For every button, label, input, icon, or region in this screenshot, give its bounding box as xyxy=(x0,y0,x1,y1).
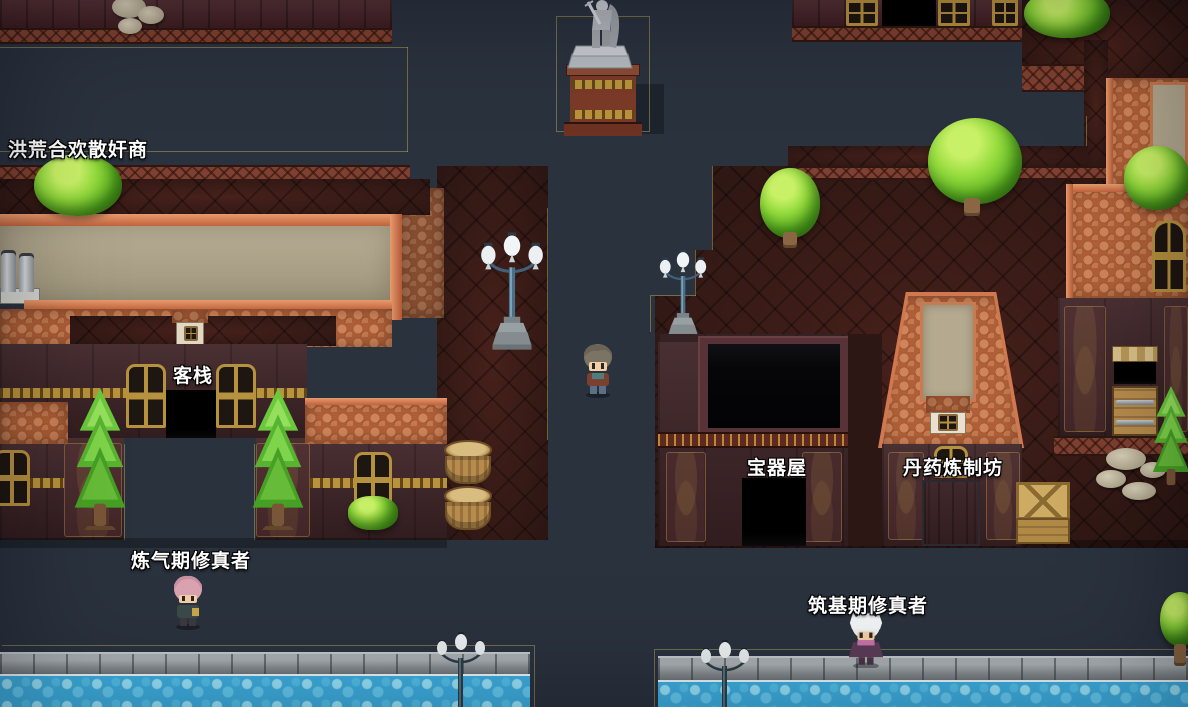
treasure-shop-entrance[interactable] xyxy=(742,478,806,546)
wall-stone xyxy=(118,18,142,34)
wooden-crate-base xyxy=(1016,518,1070,544)
wing-roof-right-trim xyxy=(305,398,447,405)
tree-trunk xyxy=(783,232,797,248)
pedestal-band xyxy=(572,80,634,89)
label-inn: 客栈 xyxy=(173,365,213,387)
lamppost xyxy=(700,640,750,707)
label-merchant: 洪荒合欢散奸商 xyxy=(8,139,148,161)
dormer-window xyxy=(938,414,958,431)
chimney xyxy=(19,253,34,292)
treasure-shop-deco-band xyxy=(658,432,848,448)
pedestal-band xyxy=(572,110,634,119)
pool-outline xyxy=(534,645,535,707)
tree-round xyxy=(928,118,1022,204)
inn-window xyxy=(216,364,256,428)
counter-opening[interactable] xyxy=(1114,362,1156,384)
top-left-wall-trim xyxy=(0,28,392,44)
arched-window xyxy=(1152,220,1186,292)
tree-pine xyxy=(252,388,304,530)
tree-pine xyxy=(1150,386,1188,488)
right-building-panel xyxy=(1064,306,1106,432)
top-building-window xyxy=(938,0,970,26)
wing-roof-left xyxy=(0,402,68,444)
tree-round xyxy=(1160,592,1188,646)
barrel xyxy=(445,456,491,484)
label-npc-qi-refining: 炼气期修真者 xyxy=(131,550,251,572)
tree-round xyxy=(1124,146,1188,210)
top-building-window xyxy=(846,0,878,26)
top-left-wall xyxy=(0,0,392,30)
path-outline xyxy=(0,47,408,48)
tree-trunk xyxy=(1174,644,1186,666)
inn-entrance-path[interactable] xyxy=(124,438,256,540)
tree-trunk xyxy=(964,198,980,216)
pill-workshop-sign xyxy=(920,302,976,402)
inn-flat-roof xyxy=(0,226,390,302)
lamppost xyxy=(476,228,548,352)
wooden-crate xyxy=(1016,482,1070,520)
pool-outline xyxy=(654,650,655,707)
path-outline xyxy=(1086,116,1087,149)
top-building-window xyxy=(992,0,1018,26)
left-terrace xyxy=(437,166,548,540)
label-pill-workshop: 丹药炼制坊 xyxy=(903,457,1003,479)
npc-foundation[interactable] xyxy=(844,610,888,668)
dormer-window xyxy=(184,326,198,341)
terrace-outline xyxy=(650,296,651,332)
treasure-shop-panel xyxy=(802,452,842,542)
display-window-glass xyxy=(708,344,840,428)
npc-qi-refining[interactable] xyxy=(168,574,208,630)
building-gap xyxy=(848,334,882,546)
terrace-outline xyxy=(712,166,713,250)
chimney xyxy=(1,250,16,292)
statue-pedestal-base xyxy=(564,122,642,136)
tree-pine xyxy=(74,388,126,530)
game-viewport: 洪荒合欢散奸商 客栈 宝器屋 丹药炼制坊 炼气期修真者 筑基期修真者 xyxy=(0,0,1188,707)
top-building-doorway[interactable] xyxy=(882,0,936,28)
label-npc-foundation: 筑基期修真者 xyxy=(808,595,928,617)
wing-shadow xyxy=(0,538,447,548)
inn-window xyxy=(126,364,166,428)
player-character[interactable] xyxy=(578,342,618,398)
right-building-roof-trim xyxy=(1106,78,1113,190)
top-right-building-trim xyxy=(792,26,1022,42)
barrel xyxy=(445,502,491,530)
right-building-roof-trim xyxy=(1066,184,1073,300)
label-treasure-shop: 宝器屋 xyxy=(747,457,807,479)
ground-stone xyxy=(1096,470,1126,488)
tree-round xyxy=(760,168,820,238)
wing-window xyxy=(0,450,30,506)
dormer-roof xyxy=(926,396,970,413)
treasure-shop-panel xyxy=(666,452,706,542)
inn-doorway[interactable] xyxy=(166,390,216,440)
pill-workshop-entrance[interactable] xyxy=(922,480,980,546)
counter-awning xyxy=(1112,346,1158,362)
path-outline xyxy=(407,47,408,152)
lamppost xyxy=(436,632,486,707)
wall-stone xyxy=(138,6,164,24)
hero-statue xyxy=(566,0,634,72)
tree-round xyxy=(34,154,122,216)
window-bush xyxy=(348,496,398,530)
